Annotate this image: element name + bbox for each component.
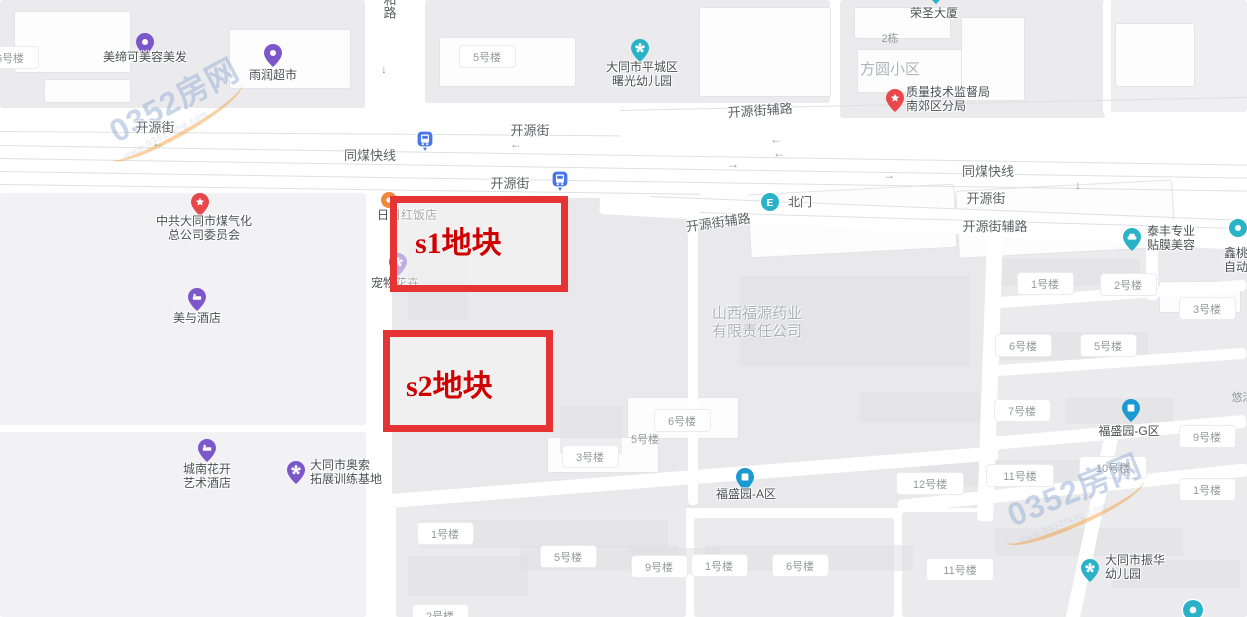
building-label: 2号楼 [1114, 277, 1142, 293]
poi-pin-bus[interactable] [551, 170, 569, 193]
poi-pin-bed[interactable] [198, 439, 216, 462]
poi-pin-flower[interactable] [287, 461, 305, 484]
poi-label-line: 福盛园-G区 [1098, 424, 1159, 438]
building-label: 2栋 [881, 30, 898, 46]
poi-label-line: 大同市奥索 [310, 458, 382, 472]
poi-label-line: 曙光幼儿园 [606, 74, 678, 88]
building-label: 悠活城 [1232, 389, 1247, 405]
building-label: 12号楼 [913, 476, 947, 492]
building-label: 2号楼 [426, 608, 454, 617]
road-arrow-icon: ← [510, 137, 522, 151]
road-arrow-icon: ← [773, 146, 785, 160]
area-label: 山西福源药业有限责任公司 [712, 305, 802, 341]
building-label: 7号楼 [1008, 403, 1036, 419]
map-building [860, 392, 980, 422]
road-arrow-icon: ← [770, 132, 782, 146]
building-label: 3号楼 [576, 449, 604, 465]
poi-label: 北门 [788, 195, 812, 209]
poi-pin-flower[interactable] [631, 39, 649, 62]
area-label: 方圆小区 [860, 61, 920, 79]
poi-label: 福盛园-G区 [1098, 424, 1159, 438]
poi-label: 大同市奥索拓展训练基地 [310, 458, 382, 486]
building-label: 1号楼 [431, 526, 459, 542]
poi-label-line: 拓展训练基地 [310, 472, 382, 486]
building-label: 9号楼 [1193, 429, 1221, 445]
area-label-line: 山西福源药业 [712, 305, 802, 323]
building-label: 11号楼 [943, 562, 976, 578]
map-road-line [0, 145, 1247, 166]
poi-label-line: 泰丰专业 [1147, 224, 1195, 238]
poi-label: 雨润超市 [249, 68, 297, 82]
poi-label-line: 中共大同市煤气化 [156, 214, 252, 228]
map-road [688, 200, 698, 505]
poi-label: 美缔可美容美发 [103, 50, 187, 64]
poi-label: 城南花开艺术酒店 [183, 462, 231, 490]
poi-pin-bed[interactable] [188, 288, 206, 311]
map-building [1116, 24, 1194, 86]
map-canvas[interactable]: 0352房网www.0352fang.com0352房网www.0352fang… [0, 0, 1247, 617]
poi-label-line: 北门 [788, 195, 812, 209]
poi-label-line: 总公司委员会 [156, 228, 252, 242]
poi-label: 美与酒店 [173, 311, 221, 325]
building-label: 5号楼 [473, 49, 501, 65]
poi-label: 泰丰专业贴膜美容 [1147, 224, 1195, 252]
building-label: 5号楼 [1094, 338, 1122, 354]
building-label: 11号楼 [1003, 468, 1036, 484]
poi-pin-dot[interactable] [1229, 219, 1247, 237]
poi-label-line: 贴膜美容 [1147, 238, 1195, 252]
road-arrow-icon: → [883, 168, 895, 182]
area-label-line: 有限责任公司 [712, 323, 802, 341]
poi-label-line: 幼儿园 [1105, 567, 1165, 581]
building-label: 5号楼 [631, 431, 659, 447]
road-arrow-icon: ← [152, 136, 164, 150]
building-label: 6号楼 [0, 50, 24, 66]
area-label-line: 方圆小区 [860, 61, 920, 79]
building-label: 5号楼 [554, 549, 582, 565]
poi-label-line: 鑫桃园 [1224, 246, 1247, 260]
building-label: 3号楼 [1193, 301, 1221, 317]
poi-pin-building[interactable] [927, 0, 945, 4]
map-building [700, 8, 830, 96]
map-building [45, 80, 130, 102]
poi-label-line: 质量技术监督局 [906, 85, 990, 99]
poi-pin-car[interactable] [1123, 228, 1141, 251]
poi-label-line: 大同市振华 [1105, 553, 1165, 567]
building-label: 6号楼 [1009, 338, 1037, 354]
poi-pin-cart[interactable] [264, 44, 282, 67]
building-label: 10号楼 [1096, 460, 1130, 476]
poi-pin-star[interactable] [886, 89, 904, 112]
poi-label: 中共大同市煤气化总公司委员会 [156, 214, 252, 242]
poi-pin-star[interactable] [191, 193, 209, 216]
road-label: 和路 [380, 0, 399, 19]
building-label: 1号楼 [1031, 276, 1059, 292]
road-label: 同煤快线 [962, 161, 1014, 180]
road-label: 开源街 [966, 188, 1005, 207]
building-label: 6号楼 [668, 413, 696, 429]
poi-label: 荣圣大厦 [910, 6, 958, 20]
poi-label-line: 自动变 [1224, 260, 1247, 274]
parcel-s1-label: s1地块 [415, 218, 502, 262]
poi-label-line: 南郊区分局 [906, 99, 990, 113]
poi-label: 福盛园-A区 [716, 487, 776, 501]
svg-text:E: E [767, 198, 774, 209]
map-building [408, 556, 528, 596]
poi-label-line: 城南花开 [183, 462, 231, 476]
building-label: 1号楼 [1193, 482, 1221, 498]
poi-label-line: 大同市平城区 [606, 60, 678, 74]
poi-pin-building[interactable] [1122, 399, 1140, 422]
road-arrow-icon: → [727, 157, 739, 171]
poi-label-line: 荣圣大厦 [910, 6, 958, 20]
building-label: 1号楼 [705, 558, 733, 574]
poi-label: 大同市振华幼儿园 [1105, 553, 1165, 581]
road-arrow-icon: ↓ [381, 62, 387, 76]
poi-label-line: 雨润超市 [249, 68, 297, 82]
road-arrow-icon: ↓ [1075, 178, 1081, 192]
map-building [1065, 398, 1173, 424]
poi-label: 鑫桃园自动变 [1224, 246, 1247, 274]
poi-label-line: 美与酒店 [173, 311, 221, 325]
poi-pin-flower[interactable] [1081, 559, 1099, 582]
poi-label: 质量技术监督局南郊区分局 [906, 85, 990, 113]
map-road [1103, 0, 1111, 115]
poi-label: 大同市平城区曙光幼儿园 [606, 60, 678, 88]
parcel-s2-label: s2地块 [406, 361, 493, 405]
poi-label-line: 艺术酒店 [183, 476, 231, 490]
poi-label-line: 福盛园-A区 [716, 487, 776, 501]
poi-label-line: 美缔可美容美发 [103, 50, 187, 64]
building-label: 6号楼 [786, 558, 814, 574]
road-label: 开源街 [490, 173, 529, 192]
road-label: 开源街辅路 [727, 98, 793, 121]
poi-pin-dot[interactable] [1183, 600, 1203, 617]
building-label: 9号楼 [645, 559, 673, 575]
poi-pin-bus[interactable] [416, 130, 434, 153]
road-label: 同煤快线 [344, 145, 396, 164]
poi-pin-gate[interactable]: E [761, 193, 779, 211]
road-label: 开源街辅路 [962, 216, 1027, 235]
road-label: 开源街 [135, 117, 174, 136]
